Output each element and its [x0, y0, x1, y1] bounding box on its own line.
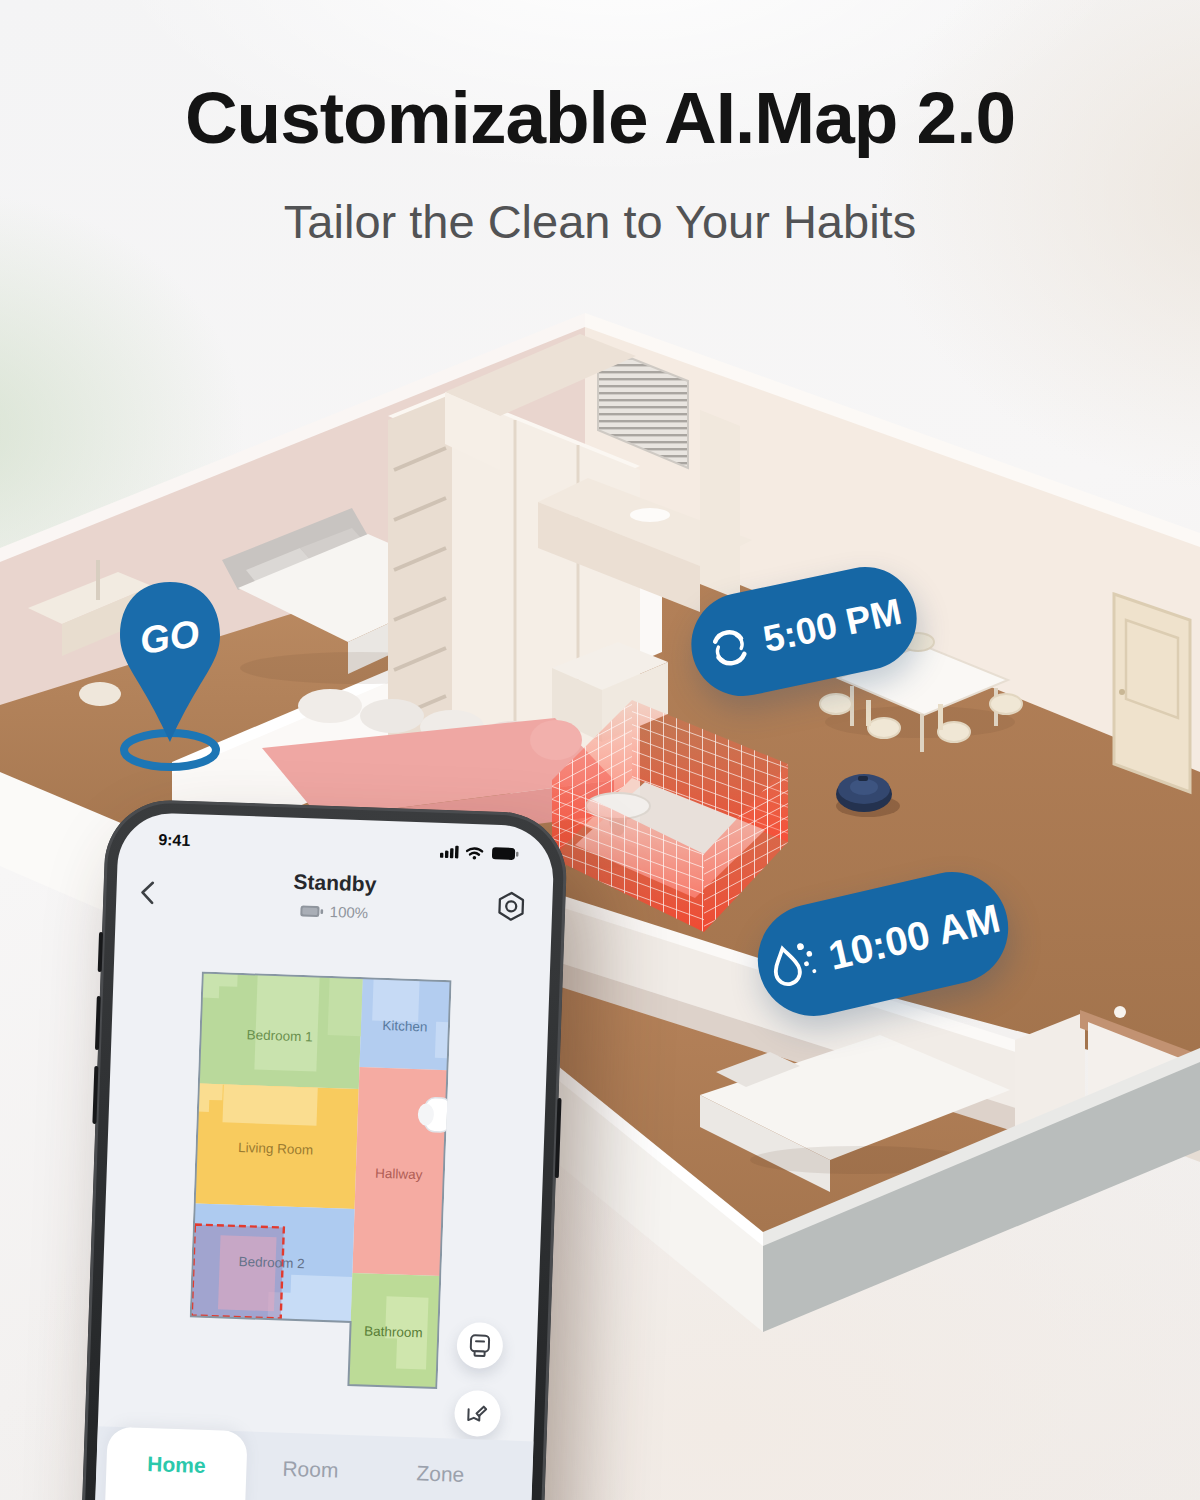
cellular-signal-icon: [440, 845, 459, 858]
map-label-bedroom1: Bedroom 1: [246, 1027, 313, 1044]
status-time: 9:41: [158, 831, 191, 850]
dock-station-button[interactable]: [456, 1322, 504, 1370]
tab-room[interactable]: Room: [254, 1456, 367, 1484]
map-label-bathroom: Bathroom: [364, 1323, 423, 1340]
door: [1114, 594, 1190, 792]
battery-icon: [492, 847, 519, 860]
map-label-kitchen: Kitchen: [382, 1018, 428, 1035]
schedule-time: 10:00 AM: [824, 895, 1004, 978]
water-drops-icon: [761, 934, 823, 996]
phone-mockup: 9:41: [79, 798, 569, 1500]
battery-icon: [300, 904, 324, 917]
tab-home[interactable]: Home: [106, 1451, 247, 1480]
battery-percent: 100%: [329, 903, 368, 921]
wifi-icon: [467, 848, 482, 855]
settings-button[interactable]: [494, 889, 529, 924]
map-mode-tabbar: Home Room Zone: [92, 1426, 533, 1500]
go-pin-label: GO: [137, 612, 201, 662]
go-location-pin: GO: [108, 578, 232, 778]
map-edit-icon: [464, 1400, 491, 1427]
status-icons: [440, 844, 521, 867]
map-edit-button[interactable]: [454, 1390, 502, 1438]
map-label-hallway: Hallway: [375, 1166, 423, 1183]
schedule-time: 5:00 PM: [760, 590, 906, 660]
map-label-livingroom: Living Room: [238, 1140, 314, 1158]
map-selected-zone[interactable]: [192, 1224, 284, 1318]
dock-station-icon: [466, 1332, 493, 1359]
marketing-page: Customizable AI.Map 2.0 Tailor the Clean…: [0, 0, 1200, 1500]
gear-icon: [494, 889, 529, 924]
floor-plan-map: Bedroom 1 Kitchen Living Room Hallway Be…: [187, 972, 451, 1390]
pin-shape: [120, 582, 220, 742]
spin-clean-icon: [702, 620, 757, 675]
map-label-bedroom2: Bedroom 2: [238, 1254, 305, 1271]
tab-zone[interactable]: Zone: [384, 1460, 497, 1488]
app-screen: 9:41: [92, 812, 555, 1500]
